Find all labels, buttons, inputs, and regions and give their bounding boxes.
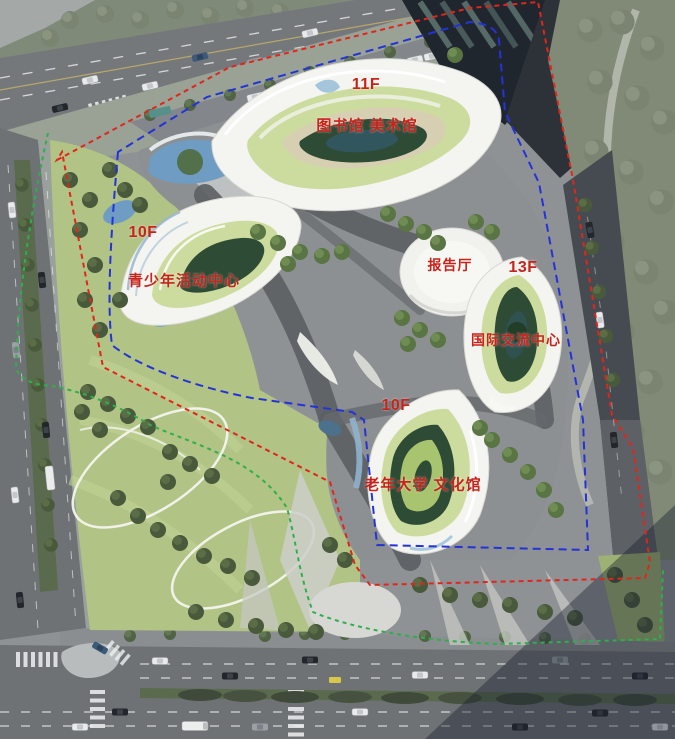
label-youth-name: 青少年活动中心 xyxy=(128,270,240,291)
label-lecture-hall: 报告厅 xyxy=(428,255,473,275)
label-library-name: 图书馆 美术馆 xyxy=(316,115,417,136)
label-intl-floors: 13F xyxy=(508,259,537,277)
aerial-site-plan xyxy=(0,0,675,739)
site-plan-rendering: 11F 图书馆 美术馆 10F 青少年活动中心 报告厅 13F 国际交流中心 1… xyxy=(0,0,675,739)
pond-island xyxy=(177,149,203,175)
label-senior-name: 老年大学 文化馆 xyxy=(364,474,481,495)
label-library-floors: 11F xyxy=(352,76,380,94)
label-intl-name: 国际交流中心 xyxy=(471,330,561,350)
label-youth-floors: 10F xyxy=(128,224,157,242)
truck xyxy=(182,722,208,731)
label-senior-floors: 10F xyxy=(381,397,410,415)
